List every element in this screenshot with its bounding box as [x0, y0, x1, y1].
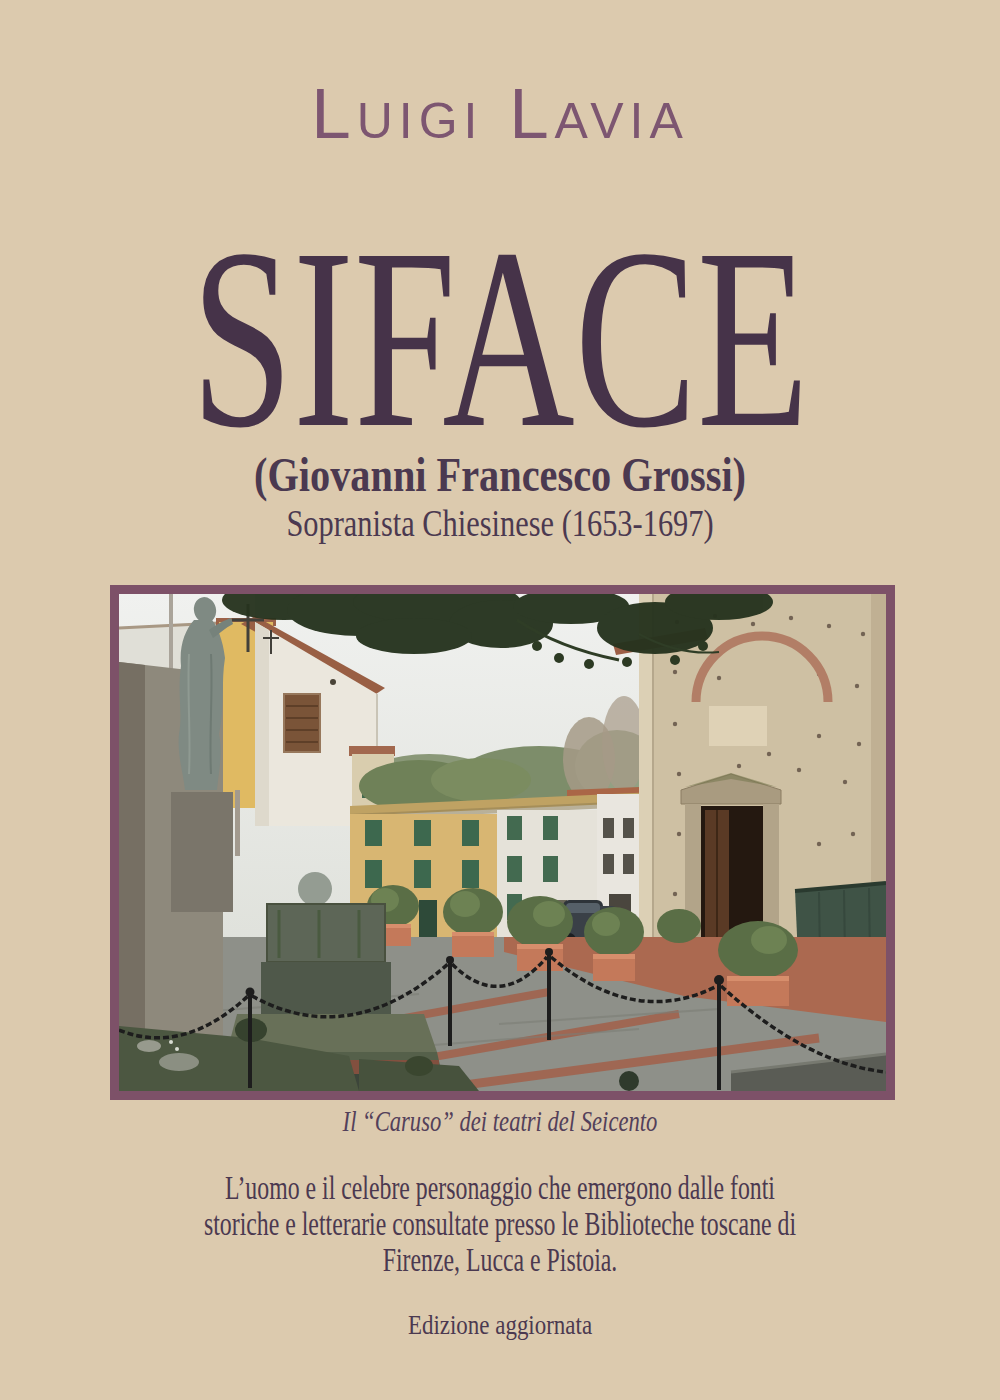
cover-photo-frame	[110, 585, 895, 1100]
description-line: L’uomo e il celebre personaggio che emer…	[150, 1170, 850, 1206]
subtitle-real-name: (Giovanni Francesco Grossi)	[80, 449, 920, 501]
description-line: storiche e letterarie consultate presso …	[150, 1206, 850, 1242]
planter	[443, 888, 503, 957]
book-cover: Luigi Lavia SIFACE (Giovanni Francesco G…	[0, 0, 1000, 1400]
piazza-photo	[119, 594, 886, 1091]
description: L’uomo e il celebre personaggio che emer…	[150, 1170, 850, 1278]
author-name: Luigi Lavia	[0, 78, 1000, 149]
subtitle-dates: Sopranista Chiesinese (1653-1697)	[100, 502, 900, 544]
photo-caption: Il “Caruso” dei teatri del Seicento	[110, 1104, 890, 1138]
edition-note: Edizione aggiornata	[75, 1310, 925, 1340]
planter	[584, 907, 644, 981]
book-title: SIFACE	[191, 235, 809, 440]
description-line: Firenze, Lucca e Pistoia.	[150, 1242, 850, 1278]
title-art: SIFACE	[0, 235, 1000, 440]
